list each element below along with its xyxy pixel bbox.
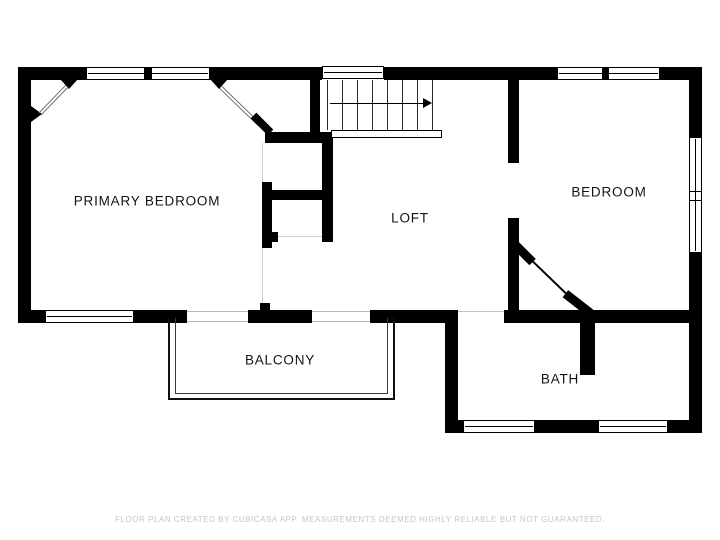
- closet-opening-line: [278, 236, 322, 237]
- stair-landing: [331, 130, 442, 138]
- bath-wall-bottom-seg2: [535, 420, 598, 433]
- door-leaf-line: [532, 260, 571, 298]
- stair-side-wall: [310, 78, 320, 133]
- window-divider: [689, 191, 702, 192]
- loft-bedroom-wall-lower: [508, 218, 519, 313]
- room-label-bedroom: BEDROOM: [571, 185, 646, 200]
- window-pane-line: [324, 72, 382, 73]
- stair-tread: [432, 80, 433, 130]
- floor-plan: PRIMARY BEDROOM LOFT BEDROOM BALCONY BAT…: [0, 0, 720, 540]
- room-label-bath: BATH: [541, 372, 579, 387]
- window-pane-line: [600, 426, 666, 427]
- exterior-wall-top-seg3: [384, 67, 557, 80]
- diagonal-wall-stub-closet: [251, 113, 274, 136]
- footer-disclaimer: FLOOR PLAN CREATED BY CUBICASA APP. MEAS…: [0, 515, 720, 524]
- window-pane-line: [695, 139, 696, 251]
- closet-opening-line: [262, 143, 263, 182]
- window-divider: [602, 67, 609, 80]
- stair-tread: [372, 80, 373, 130]
- window-pane-line: [47, 316, 132, 317]
- bath-interior-wall: [580, 313, 595, 375]
- loft-bedroom-wall-upper: [508, 67, 519, 163]
- stair-tread: [387, 80, 388, 130]
- window-top-stairs: [322, 66, 384, 79]
- closet-wall-stub: [268, 232, 278, 242]
- stair-tread: [417, 80, 418, 130]
- window-bottom-primary: [45, 310, 134, 323]
- window-divider: [689, 200, 702, 201]
- exterior-wall-right-seg1: [689, 67, 702, 137]
- room-label-balcony: BALCONY: [245, 353, 315, 368]
- bath-wall-bottom-seg1: [445, 420, 463, 433]
- exterior-wall-right-seg2: [689, 253, 702, 433]
- closet-opening-line: [262, 248, 263, 303]
- window-bath-2: [598, 420, 668, 433]
- stair-direction-line: [330, 103, 424, 104]
- bottom-wall-stub-up: [260, 303, 270, 311]
- window-divider: [144, 67, 152, 80]
- window-bath-1: [463, 420, 535, 433]
- bath-wall-bottom-seg3: [668, 420, 702, 433]
- bottom-wall-corner-left: [18, 310, 45, 323]
- room-label-primary-bedroom: PRIMARY BEDROOM: [74, 194, 221, 209]
- room-label-loft: LOFT: [391, 211, 429, 226]
- stair-direction-arrow-icon: [423, 98, 432, 108]
- window-pane-line: [465, 426, 533, 427]
- window-right-bedroom: [689, 137, 702, 253]
- stair-tread: [327, 80, 328, 130]
- bottom-wall-seg4-bedroom: [504, 310, 702, 323]
- stair-tread: [357, 80, 358, 130]
- exterior-wall-left: [18, 67, 31, 322]
- bath-door-opening: [458, 311, 504, 322]
- bath-wall-left: [445, 310, 458, 433]
- sloped-ceiling-line: [39, 85, 69, 116]
- stair-tread: [342, 80, 343, 130]
- stair-tread: [402, 80, 403, 130]
